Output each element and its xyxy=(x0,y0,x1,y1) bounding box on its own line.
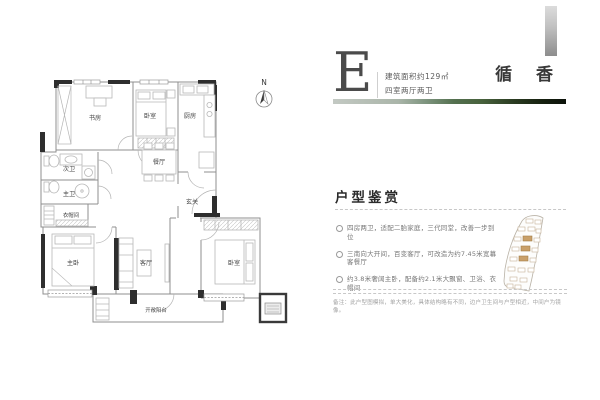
fridge xyxy=(199,152,214,168)
bullet-item: 四房两卫，适配二胎家庭，三代同堂，改善一步到位 xyxy=(336,224,501,242)
floor-plan: 书房 卧室 厨房 次卫 主卫 衣帽间 主卧 餐厅 玄关 客厅 卧室 开敞阳台 N xyxy=(38,72,290,336)
room-label-bath1: 主卫 xyxy=(63,190,75,198)
desk xyxy=(86,86,112,98)
dashed-divider xyxy=(335,209,566,210)
room-label-kitchen: 厨房 xyxy=(184,112,196,120)
room-label-bedroom2: 卧室 xyxy=(144,112,156,120)
bay-window-bedroom3 xyxy=(204,294,244,301)
room-label-closet: 衣帽间 xyxy=(63,211,79,219)
north-label: N xyxy=(261,78,267,87)
room-label-dining: 餐厅 xyxy=(153,158,165,166)
vertical-gradient-bar xyxy=(545,6,557,56)
site-plan-map xyxy=(498,213,552,295)
bullet-text: 三南向大开间，百变客厅，可改造为约7.45米宽幕客餐厅 xyxy=(347,250,501,268)
bullet-circle-icon xyxy=(336,276,343,283)
room-label-master: 主卧 xyxy=(67,259,79,267)
room-label-living: 客厅 xyxy=(140,259,152,267)
layout-text: 四室两厅两卫 xyxy=(385,85,433,96)
project-title: 循 香 xyxy=(495,60,562,85)
bullet-circle-icon xyxy=(336,251,343,258)
room-label-balcony: 开敞阳台 xyxy=(145,306,167,314)
desk-chair xyxy=(94,98,106,106)
photo-strip xyxy=(333,99,566,104)
disclaimer-note: 备注：此户型图模拟，单大美化，具体结构略有不同，边户卫生间与户型相近，中间户为镜… xyxy=(333,298,567,314)
section-title: 户型鉴赏 xyxy=(335,186,401,206)
bullet-circle-icon xyxy=(336,225,343,232)
bullet-text: 四房两卫，适配二胎家庭，三代同堂，改善一步到位 xyxy=(347,224,501,242)
balcony-cabinet xyxy=(96,298,109,320)
room-label-bath2: 次卫 xyxy=(63,165,75,173)
dashed-divider xyxy=(333,289,567,290)
area-text: 建筑面积约129㎡ xyxy=(385,71,449,82)
header-divider xyxy=(377,72,378,98)
ac-platform xyxy=(260,294,286,322)
dashed-divider xyxy=(333,293,567,294)
sofa xyxy=(119,238,133,288)
closet-shelves xyxy=(44,206,54,225)
plan-type-letter: E xyxy=(333,46,372,100)
north-compass-icon: N xyxy=(256,78,272,107)
room-label-study: 书房 xyxy=(89,114,101,122)
room-label-entry: 玄关 xyxy=(186,198,198,206)
bullet-item: 三南向大开间，百变客厅，可改造为约7.45米宽幕客餐厅 xyxy=(336,250,501,268)
wardrobe3 xyxy=(204,220,258,230)
tv-cabinet xyxy=(165,244,169,282)
room-label-bedroom3: 卧室 xyxy=(228,259,240,267)
flue-shaft xyxy=(58,86,71,144)
page: 书房 卧室 厨房 次卫 主卫 衣帽间 主卧 餐厅 玄关 客厅 卧室 开敞阳台 N… xyxy=(0,0,600,400)
